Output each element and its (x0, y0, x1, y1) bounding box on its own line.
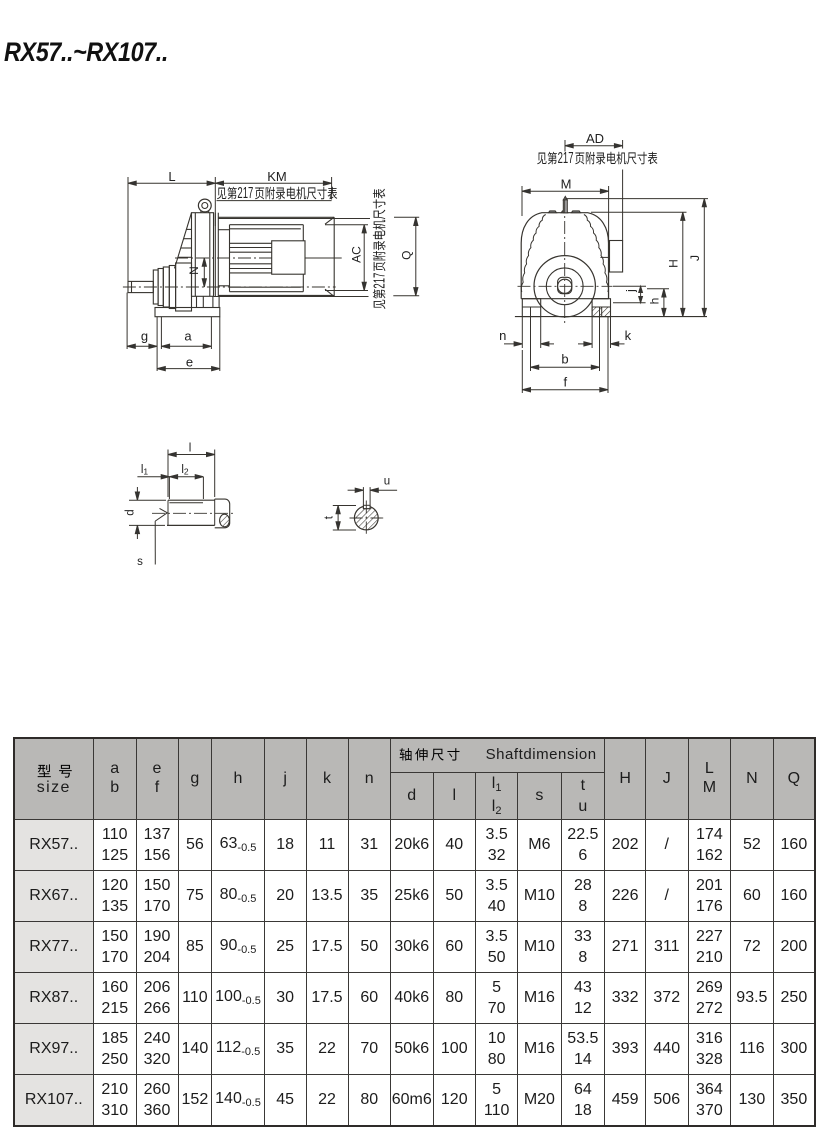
svg-text:AD: AD (586, 131, 604, 146)
svg-text:a: a (184, 329, 192, 344)
svg-text:k: k (625, 328, 632, 343)
svg-text:l: l (189, 443, 192, 455)
svg-text:l1: l1 (141, 464, 149, 477)
svg-text:AC: AC (349, 246, 363, 263)
svg-text:e: e (186, 354, 193, 369)
svg-text:KM: KM (267, 169, 287, 184)
svg-text:H: H (666, 259, 680, 268)
svg-text:h: h (648, 298, 662, 305)
svg-text:n: n (499, 328, 506, 343)
svg-text:u: u (384, 476, 390, 488)
svg-text:J: J (688, 255, 702, 261)
svg-text:N: N (187, 266, 201, 275)
svg-text:j: j (624, 289, 638, 293)
svg-text:M: M (561, 177, 572, 192)
svg-text:f: f (563, 374, 567, 389)
svg-text:g: g (141, 329, 148, 344)
svg-text:l2: l2 (181, 464, 189, 477)
svg-text:L: L (168, 169, 175, 184)
svg-text:Q: Q (399, 251, 413, 260)
svg-text:217: 217 (237, 185, 253, 202)
svg-text:d: d (125, 509, 137, 515)
svg-text:b: b (561, 351, 568, 366)
svg-text:217: 217 (371, 273, 388, 289)
svg-text:t: t (324, 515, 336, 519)
svg-text:s: s (137, 556, 143, 568)
svg-text:217: 217 (558, 150, 574, 167)
